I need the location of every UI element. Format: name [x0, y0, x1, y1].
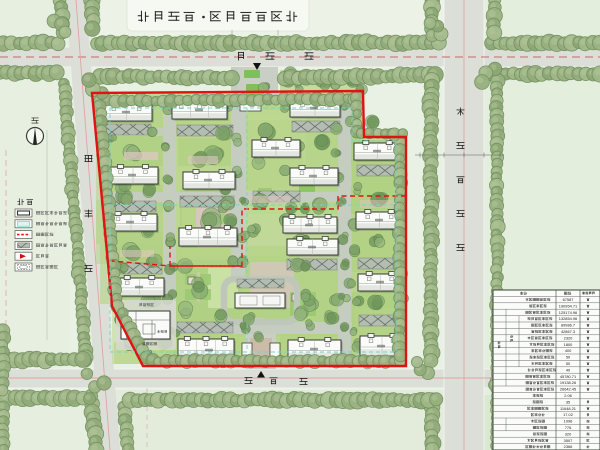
svg-text:2366: 2366	[564, 444, 573, 449]
svg-text:2320: 2320	[564, 335, 573, 340]
svg-text:1800: 1800	[564, 342, 573, 347]
svg-text:3507: 3507	[564, 438, 573, 443]
svg-text:89986.7: 89986.7	[561, 323, 575, 328]
svg-text:320: 320	[565, 431, 572, 436]
svg-text:45780.71: 45780.71	[560, 374, 576, 379]
svg-text:132854.96: 132854.96	[559, 316, 577, 321]
svg-text:17.02: 17.02	[563, 412, 573, 417]
svg-text:1096: 1096	[564, 419, 573, 424]
svg-text:190954.71: 190954.71	[559, 303, 577, 308]
svg-text:400: 400	[565, 348, 572, 353]
svg-text:2.06: 2.06	[564, 393, 572, 398]
svg-text:776: 776	[565, 425, 572, 430]
svg-text:35: 35	[566, 399, 570, 404]
svg-text:67587: 67587	[563, 297, 574, 302]
svg-text:42867.3: 42867.3	[561, 329, 575, 334]
svg-text:11648.21: 11648.21	[560, 406, 576, 411]
svg-text:26642.45: 26642.45	[560, 387, 576, 392]
svg-text:125174.96: 125174.96	[559, 310, 577, 315]
svg-text:19138.26: 19138.26	[560, 380, 576, 385]
